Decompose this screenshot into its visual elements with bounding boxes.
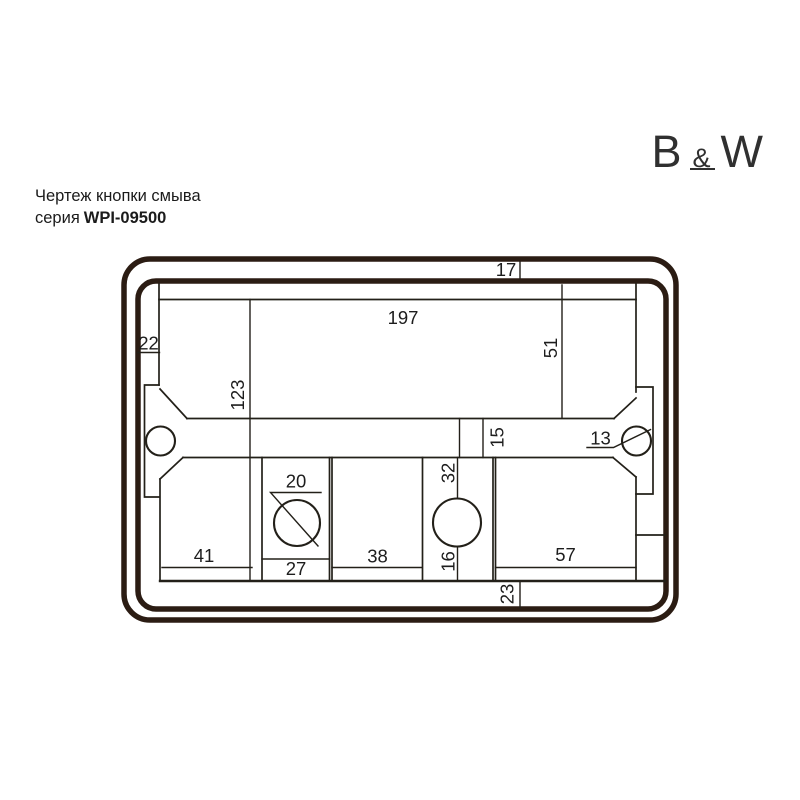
dim-plate-width: 197 bbox=[388, 307, 419, 328]
inner-frame bbox=[138, 281, 666, 609]
dim-left-panel-width: 41 bbox=[194, 545, 215, 566]
dim-button-panel-width: 27 bbox=[286, 558, 307, 579]
dim-right-panel-width: 57 bbox=[555, 544, 576, 565]
left-screw-hole bbox=[146, 427, 175, 456]
dim-strip-bottom: 16 bbox=[438, 551, 459, 572]
dim-top-rim: 17 bbox=[496, 259, 517, 280]
center-hole bbox=[433, 499, 481, 547]
crossbar bbox=[160, 419, 636, 480]
dim-strip-top: 32 bbox=[438, 463, 459, 484]
dim-left-rim: 22 bbox=[138, 333, 159, 354]
dim-mid-panel-width: 38 bbox=[367, 546, 388, 567]
dim-button-hole: 20 bbox=[286, 471, 307, 492]
dim-bottom-rim: 23 bbox=[497, 584, 518, 605]
dim-left-section-height: 123 bbox=[227, 380, 248, 411]
dim-panel-height: 51 bbox=[540, 338, 561, 359]
dim-crossbar-gap: 15 bbox=[487, 427, 508, 448]
dim-screw-hole: 13 bbox=[590, 428, 611, 449]
bottom-panels bbox=[160, 458, 665, 582]
flush-button-drawing: 17 197 22 51 123 15 13 20 41 27 38 32 16… bbox=[0, 0, 800, 800]
